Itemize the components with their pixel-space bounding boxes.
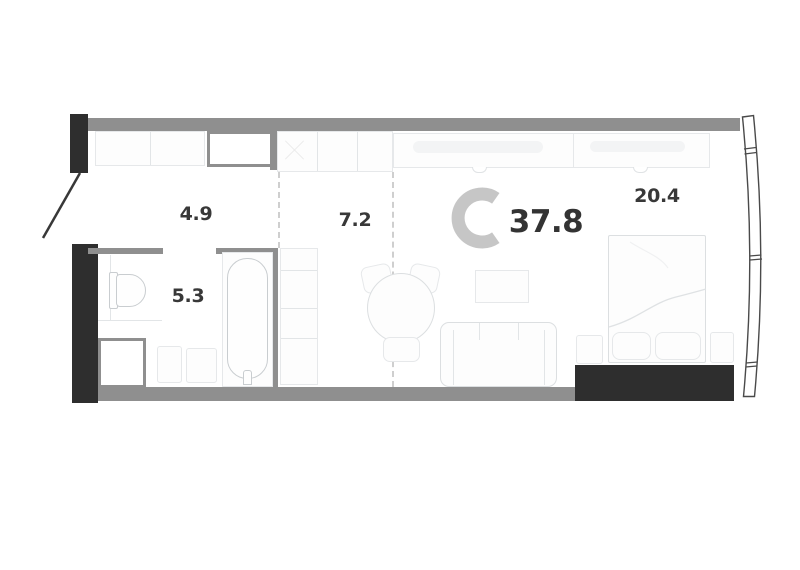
wardrobe-middle-shade (413, 141, 543, 153)
nightstand-left (576, 335, 603, 364)
sofa-cushion-seam-2 (518, 323, 519, 340)
toilet-bowl (116, 274, 146, 307)
kitchen-counter-divider-2 (357, 132, 358, 171)
hob-icon (284, 139, 306, 161)
kitchen-area-label: 7.2 (325, 207, 385, 233)
wall-top (88, 118, 740, 131)
bathtub-faucet (243, 370, 252, 385)
kitchen-cabinet-divider-1 (281, 270, 317, 271)
bathroom-area-label: 5.3 (158, 283, 218, 309)
bath-cabinet (186, 348, 217, 383)
sofa-armrest-left (453, 330, 454, 385)
sofa-armrest-right (544, 330, 545, 385)
closet-right-notch (633, 167, 648, 173)
kitchen-cabinet-divider-3 (281, 338, 317, 339)
sofa (440, 322, 557, 387)
wall-bottom (98, 387, 577, 401)
sofa-cushion-seam-1 (479, 323, 480, 340)
logo-letter-c-icon (458, 194, 496, 242)
wall-entry-left (70, 114, 88, 173)
living-room-area-label: 20.4 (622, 183, 692, 209)
curved-window-wall-icon (743, 116, 763, 397)
floor-plan: 4.9 7.2 5.3 20.4 37.8 (0, 0, 800, 570)
wall-bottom-right (575, 365, 734, 401)
wall-bathroom-top-left (88, 248, 163, 254)
zone-divider-hallway-kitchen (278, 172, 280, 248)
total-area-label: 37.8 (498, 205, 594, 239)
duct-box-bathroom (98, 338, 146, 388)
vanity-front (98, 320, 162, 321)
entry-wardrobe-divider (150, 132, 151, 165)
duct-box-entry (207, 131, 273, 167)
kitchen-cabinet-column (280, 248, 318, 385)
kitchen-cabinet-divider-2 (281, 308, 317, 309)
wardrobe-middle-notch (472, 167, 487, 173)
closet-right-shade (590, 141, 685, 152)
nightstand-right (710, 332, 734, 363)
wall-left (72, 244, 98, 403)
washing-machine (157, 346, 182, 383)
dining-chair-bottom (383, 337, 420, 362)
bathtub (227, 258, 268, 379)
kitchen-counter-divider-1 (317, 132, 318, 171)
dining-table (367, 273, 435, 343)
bed-pillow-right (655, 332, 701, 360)
coffee-table (475, 270, 529, 303)
entry-door-icon (43, 173, 80, 238)
hallway-area-label: 4.9 (166, 201, 226, 227)
bed-pillow-left (612, 332, 651, 360)
